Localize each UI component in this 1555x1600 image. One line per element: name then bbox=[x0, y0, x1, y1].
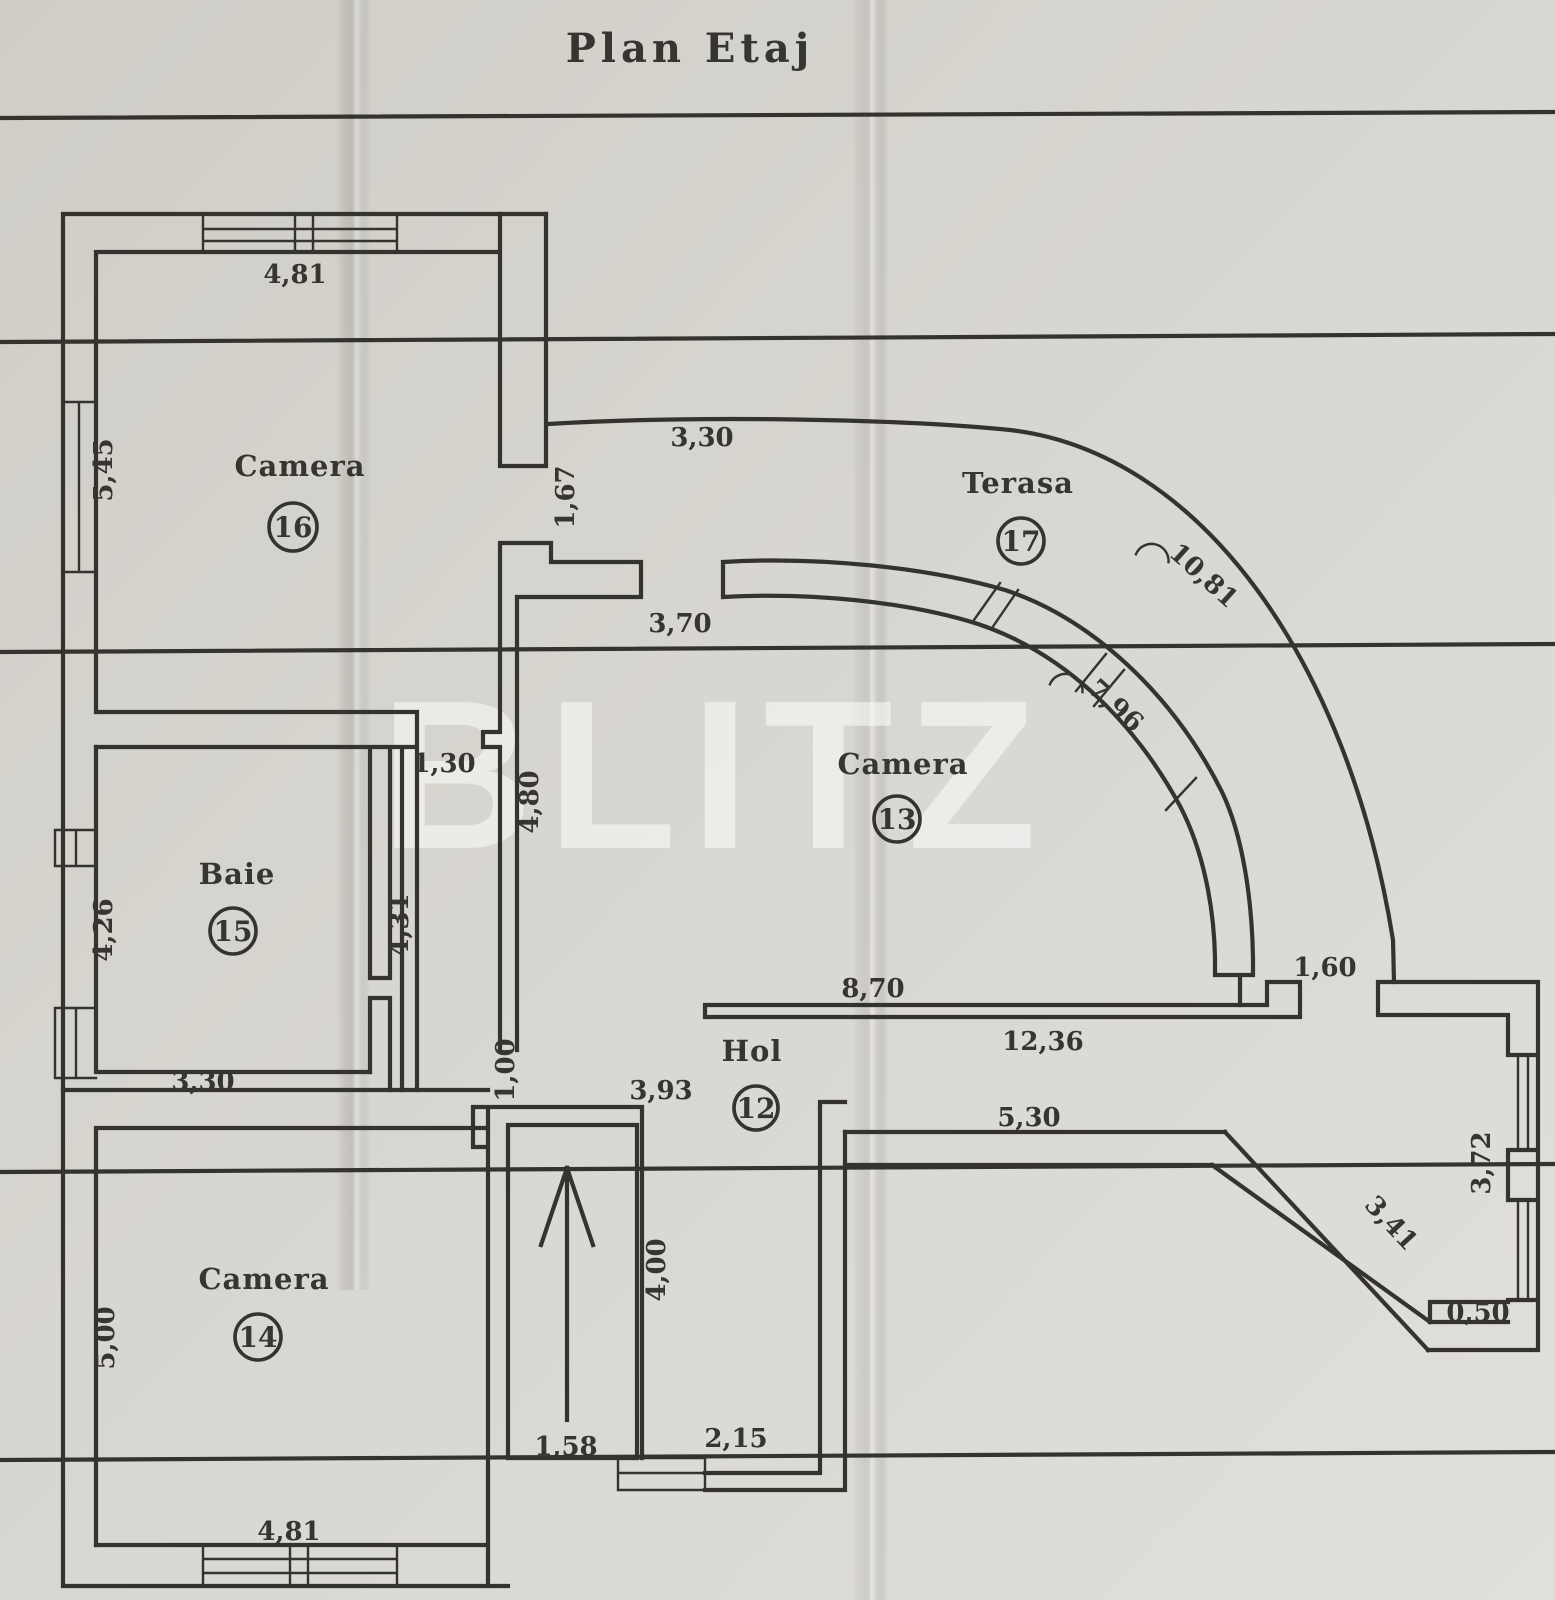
room-label-camera16: Camera bbox=[234, 449, 365, 483]
dim-terasa-entry: 3,30 bbox=[670, 423, 733, 453]
room-number-17: 17 bbox=[1002, 525, 1041, 558]
dim-cam13-entry: 3,70 bbox=[648, 609, 711, 639]
room-label-terasa: Terasa bbox=[962, 466, 1074, 500]
dim-stair-length: 4,00 bbox=[642, 1238, 672, 1301]
dim-baie-left: 4,26 bbox=[89, 898, 119, 961]
room-label-camera14: Camera bbox=[198, 1262, 329, 1296]
room-number-12: 12 bbox=[737, 1092, 776, 1125]
dim-hol-top: 8,70 bbox=[841, 974, 904, 1004]
room-number-13: 13 bbox=[878, 803, 917, 836]
room-label-hol: Hol bbox=[722, 1034, 783, 1068]
room-label-baie: Baie bbox=[199, 857, 276, 891]
dim-door-cam16: 1,67 bbox=[551, 465, 581, 528]
dim-terasa-door: 1,60 bbox=[1293, 953, 1356, 983]
dim-hol-length: 12,36 bbox=[1002, 1027, 1083, 1057]
floor-plan-drawing: BLITZ Plan Etaj Camera 16 Baie 15 Camera… bbox=[0, 0, 1555, 1600]
dim-baie-bottom: 3,30 bbox=[171, 1067, 234, 1097]
room-label-camera13: Camera bbox=[837, 747, 968, 781]
room-number-15: 15 bbox=[214, 915, 253, 948]
paper-fold-left bbox=[336, 0, 370, 1290]
page-title: Plan Etaj bbox=[566, 25, 815, 72]
dim-hol-bottom: 5,30 bbox=[997, 1103, 1060, 1133]
room-number-14: 14 bbox=[239, 1321, 278, 1354]
dim-right-window: 3,72 bbox=[1467, 1131, 1497, 1194]
dim-corner: 0,50 bbox=[1446, 1298, 1509, 1328]
dim-niche: 1,30 bbox=[412, 749, 475, 779]
dim-cam14-bottom: 4,81 bbox=[257, 1517, 320, 1547]
dim-corridor: 4,80 bbox=[515, 770, 545, 833]
dim-shaft: 4,31 bbox=[385, 893, 415, 956]
room-number-16: 16 bbox=[274, 511, 313, 544]
dim-cam16-left: 5,45 bbox=[89, 438, 119, 501]
dim-stair-width: 1,58 bbox=[534, 1432, 597, 1462]
dim-stair-top: 3,93 bbox=[629, 1076, 692, 1106]
dim-vestibule: 2,15 bbox=[704, 1424, 767, 1454]
dim-cam14-left: 5,00 bbox=[91, 1306, 121, 1369]
dim-cam16-top: 4,81 bbox=[263, 260, 326, 290]
scanned-floor-plan-page: BLITZ Plan Etaj Camera 16 Baie 15 Camera… bbox=[0, 0, 1555, 1600]
dim-passage: 1,00 bbox=[491, 1038, 521, 1101]
